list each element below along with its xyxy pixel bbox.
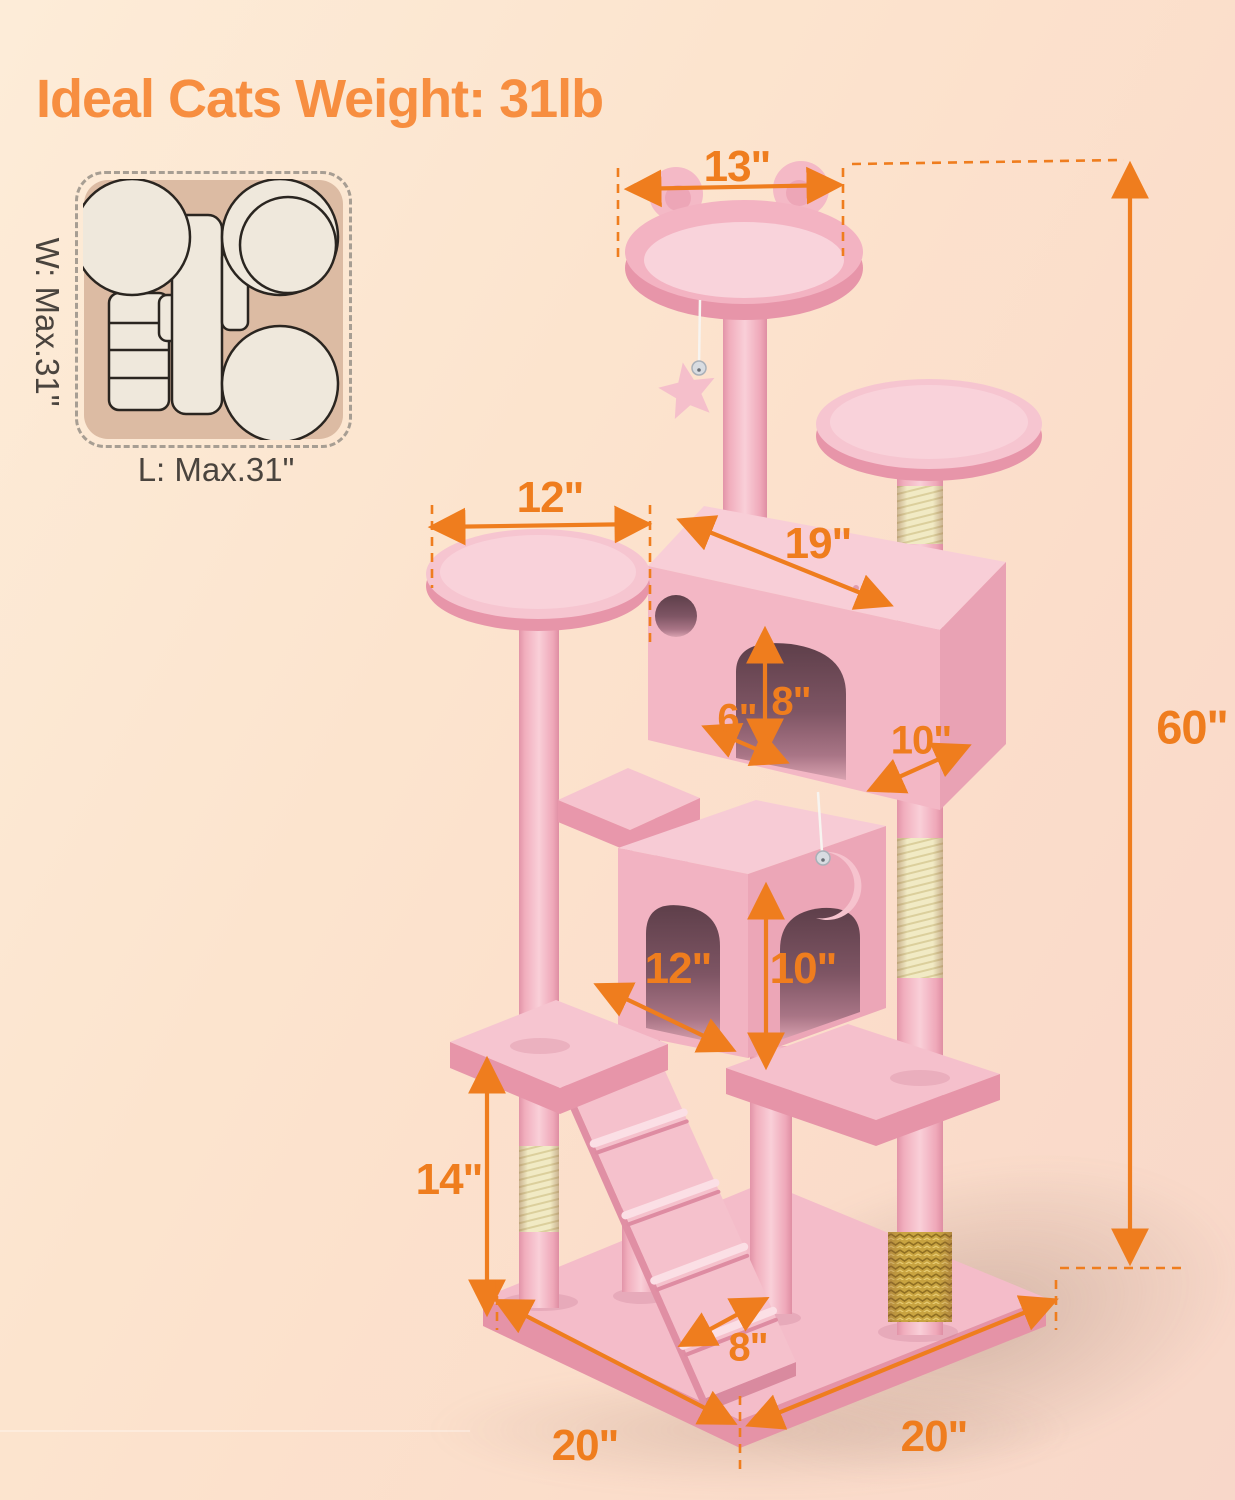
dim-left-perch-width-label: 12" <box>517 473 584 523</box>
dim-ramp-width-label: 8" <box>728 1326 767 1371</box>
dim-lower-post-height-label: 14" <box>416 1155 483 1205</box>
dim-top-perch-width-label: 13" <box>704 142 771 192</box>
extension-lines <box>432 160 1184 1470</box>
dim-lower-condo-height-label: 10" <box>770 944 837 994</box>
arrow-left-perch-width <box>434 524 646 527</box>
dim-entry-gap-label: 6" <box>717 697 756 742</box>
arrow-base-width <box>751 1301 1053 1424</box>
arrow-base-depth <box>499 1302 732 1422</box>
product-infographic: Ideal Cats Weight: 31lb W: Max.31" L: Ma… <box>0 0 1235 1500</box>
dim-condo-length-label: 19" <box>785 519 852 569</box>
dim-condo-depth-label: 10" <box>891 719 951 764</box>
dim-door-height-label: 8" <box>771 680 810 725</box>
arrow-mid-platform-span <box>599 986 731 1049</box>
dim-mid-platform-span-label: 12" <box>645 944 712 994</box>
dimension-arrows <box>0 0 1235 1500</box>
dim-base-depth-label: 20" <box>552 1421 619 1471</box>
dim-base-width-label: 20" <box>901 1412 968 1462</box>
dim-total-height-label: 60" <box>1156 700 1228 755</box>
